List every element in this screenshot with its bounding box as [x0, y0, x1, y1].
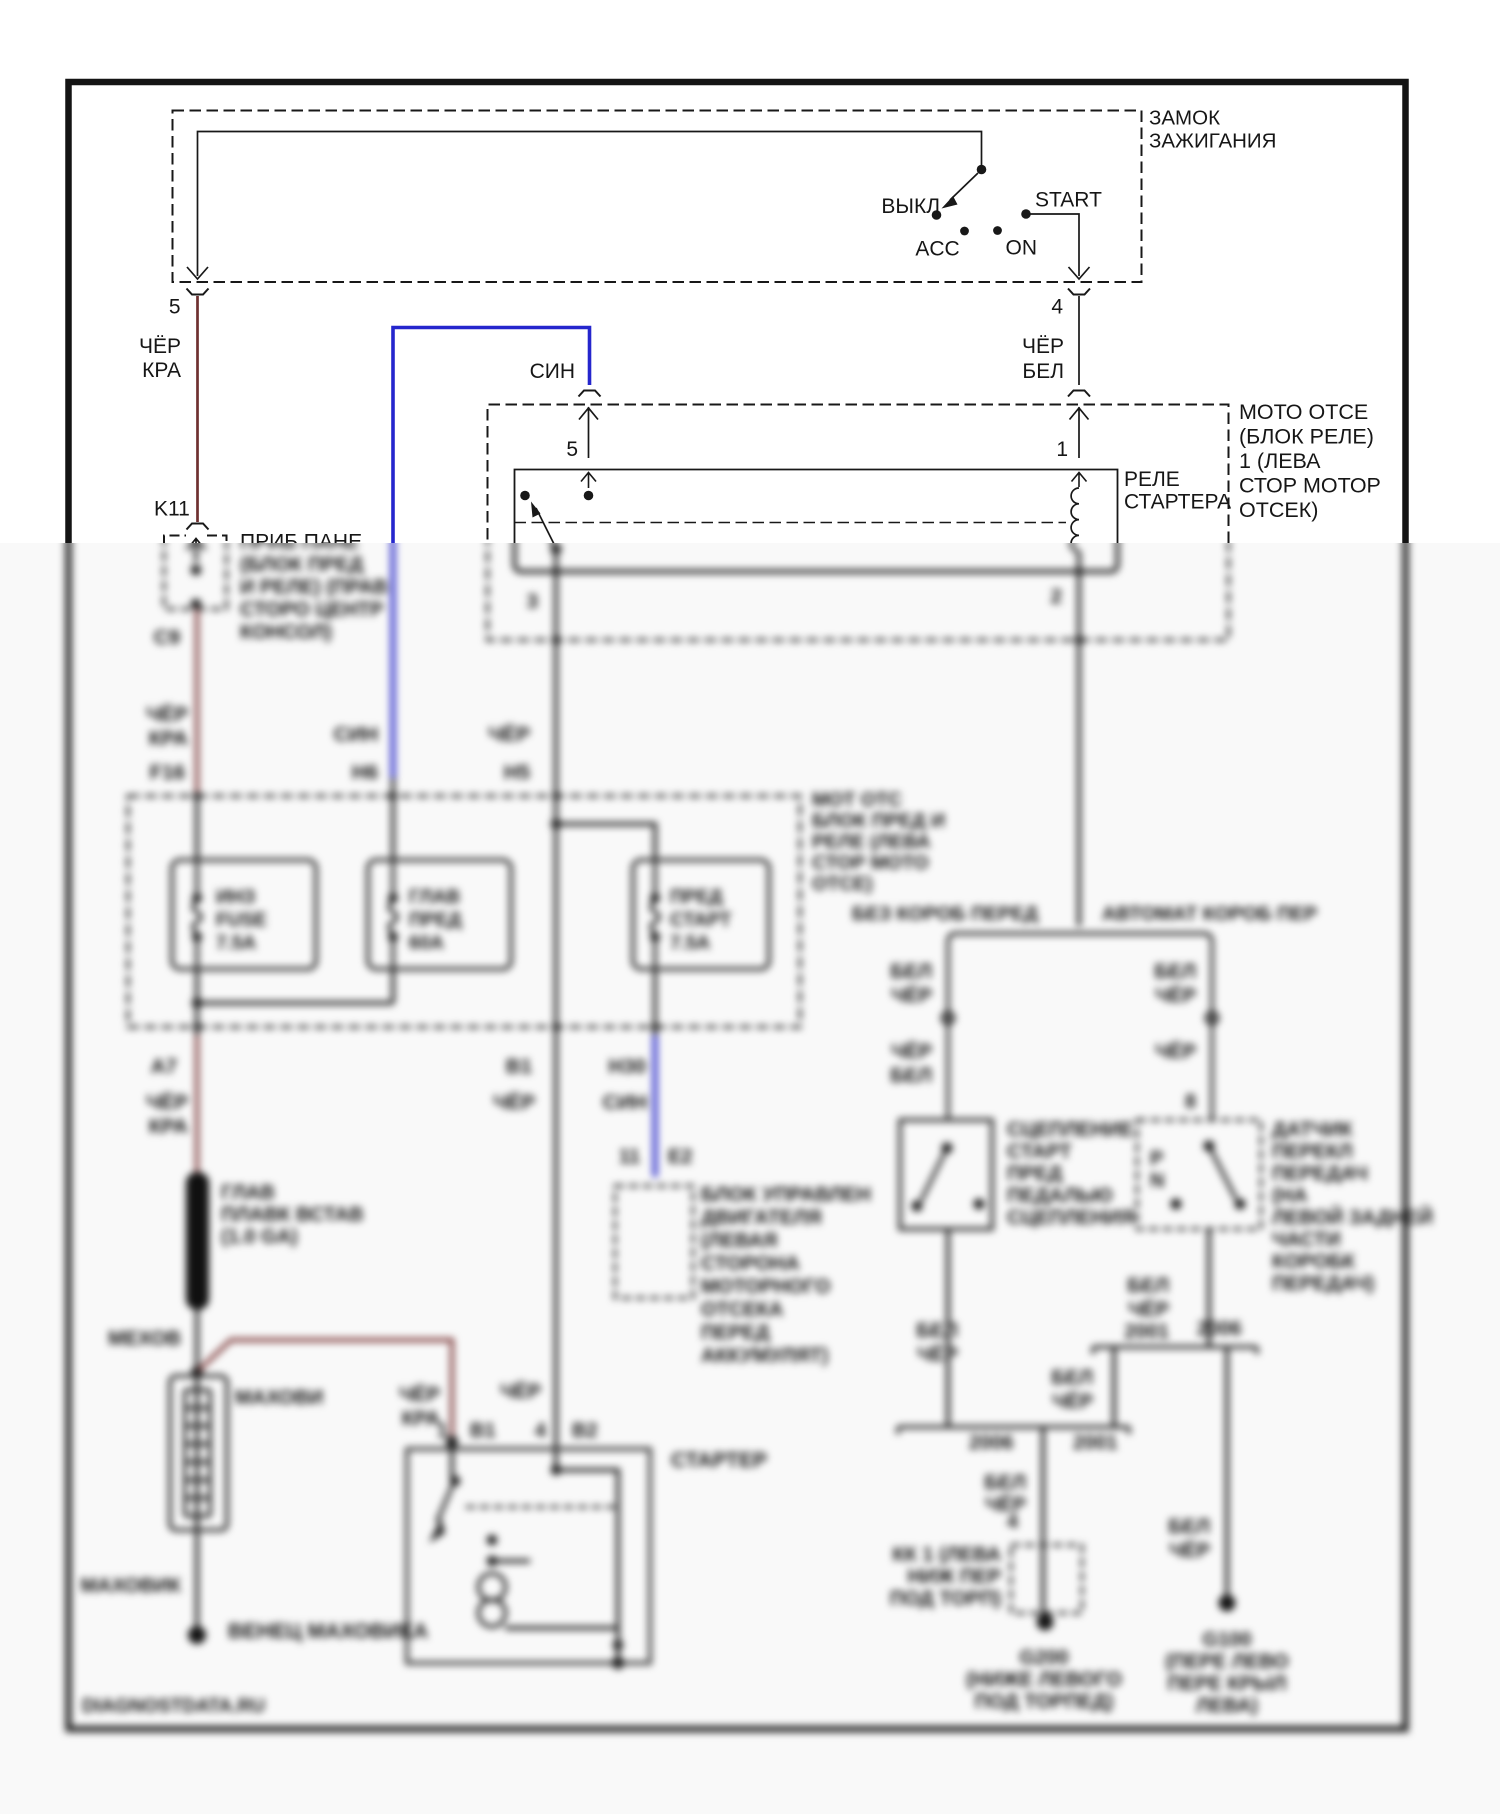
svg-text:1: 1: [1056, 438, 1068, 461]
svg-text:БЕЛ: БЕЛ: [1022, 360, 1064, 383]
svg-text:ЧЁР: ЧЁР: [1022, 335, 1064, 358]
svg-text:(БЛОК РЕЛЕ): (БЛОК РЕЛЕ): [1239, 425, 1374, 449]
svg-text:ЗАМОК: ЗАМОК: [1149, 107, 1220, 130]
svg-text:K11: K11: [154, 498, 190, 521]
svg-text:ПРИБ ПАНЕ: ПРИБ ПАНЕ: [240, 531, 362, 544]
svg-text:СТОР МОТОР: СТОР МОТОР: [1239, 474, 1381, 498]
svg-text:КРА: КРА: [142, 359, 181, 382]
svg-text:ОТСЕК): ОТСЕК): [1239, 498, 1318, 522]
svg-text:СИН: СИН: [530, 360, 575, 383]
svg-text:1 (ЛЕВА: 1 (ЛЕВА: [1239, 449, 1321, 473]
svg-text:START: START: [1035, 189, 1102, 212]
svg-text:СТАРТЕРА: СТАРТЕРА: [1124, 491, 1231, 514]
svg-text:ON: ON: [1006, 237, 1038, 260]
svg-text:5: 5: [169, 296, 181, 319]
svg-text:МОТО ОТСЕ: МОТО ОТСЕ: [1239, 400, 1368, 424]
svg-text:4: 4: [1051, 296, 1063, 319]
svg-text:РЕЛЕ: РЕЛЕ: [1124, 468, 1180, 491]
svg-text:5: 5: [566, 438, 578, 461]
svg-text:ACC: ACC: [915, 238, 959, 261]
svg-text:ВЫКЛ: ВЫКЛ: [881, 195, 940, 218]
svg-text:ЗАЖИГАНИЯ: ЗАЖИГАНИЯ: [1149, 130, 1276, 153]
svg-text:ЧЁР: ЧЁР: [139, 335, 181, 358]
